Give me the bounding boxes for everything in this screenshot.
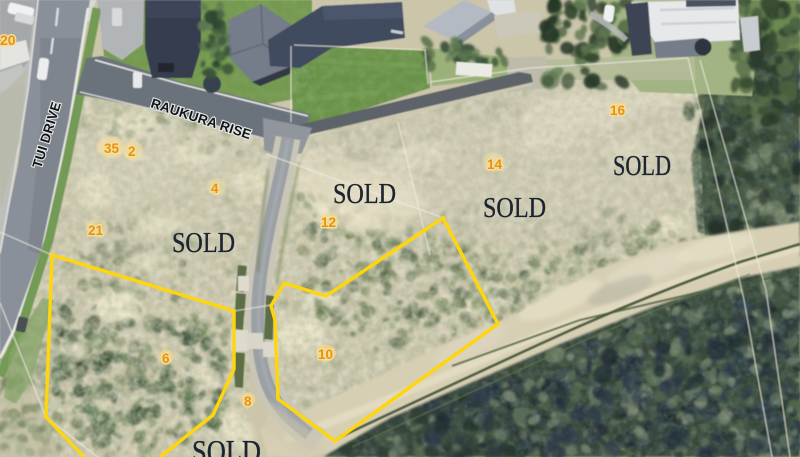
svg-text:20: 20 — [0, 32, 16, 48]
svg-text:14: 14 — [487, 157, 503, 172]
svg-text:10: 10 — [318, 347, 333, 362]
svg-text:SOLD: SOLD — [613, 150, 671, 182]
svg-text:16: 16 — [610, 103, 626, 118]
svg-text:SOLD: SOLD — [172, 227, 235, 259]
svg-text:21: 21 — [88, 223, 104, 238]
svg-text:12: 12 — [321, 215, 336, 230]
svg-text:8: 8 — [244, 394, 252, 409]
svg-text:SOLD: SOLD — [483, 192, 546, 224]
svg-text:4: 4 — [211, 181, 219, 196]
svg-text:SOLD: SOLD — [192, 434, 261, 457]
svg-text:35: 35 — [104, 141, 120, 156]
svg-text:SOLD: SOLD — [333, 178, 396, 210]
svg-text:6: 6 — [162, 351, 170, 366]
svg-text:2: 2 — [128, 144, 136, 159]
